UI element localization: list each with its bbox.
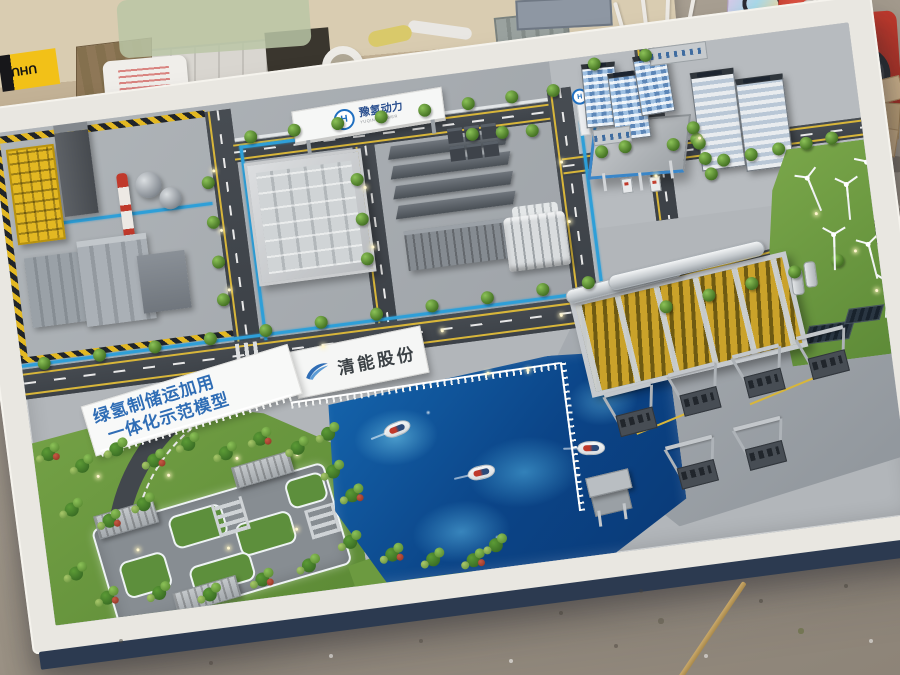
boat: [577, 441, 605, 456]
model-table: H 豫氢动力 YUQING POWER: [0, 0, 900, 655]
bush-cluster: [180, 438, 182, 440]
bush-cluster: [74, 460, 76, 462]
fuel-dispenser: [649, 176, 662, 192]
billboard-text: 清能股份: [335, 339, 418, 379]
wind-turbine: [871, 271, 900, 320]
bush-cluster: [425, 553, 427, 555]
solar-panel: [697, 70, 722, 77]
compressor-cube: [483, 141, 500, 158]
bush-cluster: [102, 514, 104, 516]
workshop-scene: UHU: [0, 0, 900, 675]
bush-cluster: [488, 539, 490, 541]
glue-box-label: UHU: [10, 61, 48, 80]
fuel-dispenser: [621, 178, 634, 194]
gate-leg: [306, 140, 312, 155]
compressor-cube: [447, 127, 464, 144]
bush-cluster: [100, 591, 102, 593]
bush-cluster: [325, 465, 327, 467]
bush-cluster: [41, 448, 43, 450]
tool-box: [515, 0, 612, 30]
turbine-pole: [866, 161, 879, 196]
bush-cluster: [151, 587, 153, 589]
turbine-hub: [831, 232, 836, 237]
bush-cluster: [136, 498, 138, 500]
turbine-hub: [884, 280, 889, 285]
compressor-cube: [466, 143, 483, 160]
solar-panel: [743, 76, 771, 84]
turbine-hub: [844, 182, 849, 187]
bush-cluster: [301, 559, 303, 561]
floor-debris: [0, 0, 2, 2]
bush-cluster: [68, 567, 70, 569]
bush-cluster: [108, 443, 110, 445]
bush-cluster: [254, 573, 256, 575]
model-surface: H 豫氢动力 YUQING POWER: [0, 22, 900, 625]
turbine-blade: [876, 274, 888, 283]
bush-cluster: [290, 442, 292, 444]
bush-cluster: [342, 536, 344, 538]
turbine-blade: [866, 151, 876, 162]
cylinder-tank-farm: [503, 211, 571, 273]
bush-cluster: [64, 503, 66, 505]
bush-cluster: [252, 432, 254, 434]
bush-cluster: [384, 548, 386, 550]
turbine-blade: [886, 282, 889, 295]
gate-leg: [431, 119, 437, 134]
compressor-cube: [449, 145, 466, 162]
swoosh-logo-icon: [300, 357, 334, 384]
turbine-pole: [885, 282, 889, 318]
factory-building: [137, 250, 192, 314]
bush-cluster: [218, 447, 220, 449]
bush-cluster: [202, 588, 204, 590]
bush-cluster: [466, 554, 468, 556]
bush-cluster: [146, 454, 148, 456]
turbine-blade: [887, 275, 899, 283]
turbine-hub: [863, 159, 869, 165]
bush-cluster: [320, 428, 322, 430]
wind-turbine: [819, 224, 850, 273]
bush-cluster: [344, 489, 346, 491]
